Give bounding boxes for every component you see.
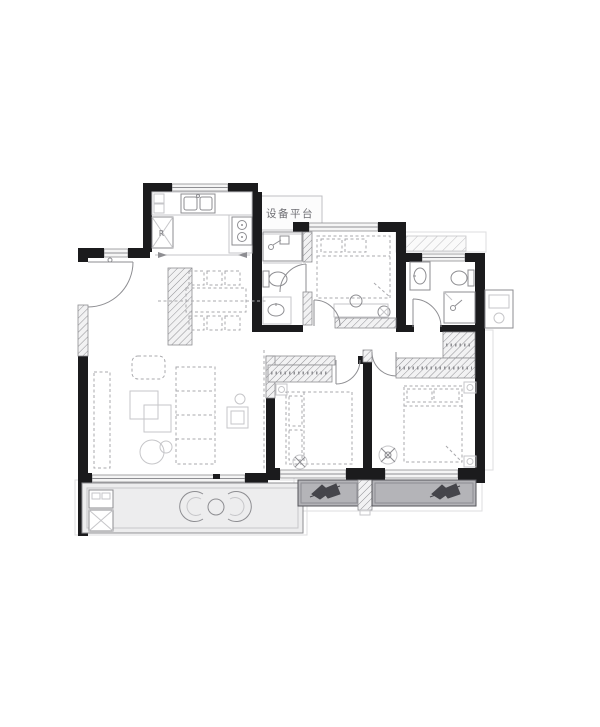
dining-chair (225, 271, 240, 285)
living-balcony-slider (92, 474, 257, 482)
dining-chair (225, 316, 240, 330)
coffee-table (130, 391, 171, 432)
bedroom-middle-wardrobe (268, 365, 332, 382)
bath-wall-upper (303, 232, 312, 262)
floor-plan-page: 设备平台 (0, 0, 600, 727)
kitchen-cabinet (154, 204, 164, 213)
balcony (82, 483, 303, 533)
bedroom-top-window (309, 223, 378, 231)
kitchen-counter-top (152, 192, 252, 215)
master-wall-stub (363, 350, 372, 362)
sofa (176, 367, 215, 464)
bedroom-top (314, 236, 390, 326)
bathroom-shared (263, 232, 306, 324)
dining-chair (207, 271, 222, 285)
equipment-platform-label: 设备平台 (266, 207, 314, 220)
bathroom-door (280, 264, 306, 292)
plant (379, 446, 397, 464)
ensuite-window (422, 254, 465, 261)
side-table (227, 394, 248, 428)
plant (293, 455, 307, 469)
door-handle (108, 258, 112, 262)
laundry-cabinet (89, 490, 113, 508)
dining-table (186, 288, 246, 312)
bedroom-middle-door (336, 360, 360, 384)
washing-machine (89, 510, 113, 531)
ac-platform (485, 290, 513, 328)
bath-wall-lower (303, 292, 312, 325)
bedroom-top-low-wall (335, 318, 396, 328)
kitchen-cabinet (154, 194, 164, 203)
armchair (132, 356, 165, 379)
stove (232, 217, 252, 245)
planter-right (372, 480, 476, 506)
refrigerator: R (152, 217, 173, 248)
nightstand (276, 384, 287, 395)
nightstand (464, 456, 476, 467)
shower (444, 292, 475, 323)
kitchen-window (172, 184, 228, 191)
floor-plan-canvas: 设备平台 (0, 0, 600, 727)
living-room (94, 350, 264, 470)
planter-divider (358, 480, 372, 515)
vanity (410, 262, 430, 290)
kitchen: R (152, 192, 252, 258)
bed (317, 236, 390, 298)
bedroom-middle-top-wall (266, 356, 335, 365)
master-door (372, 352, 396, 376)
kitchen-sink (181, 194, 215, 213)
master-window (385, 470, 458, 478)
washbasin (263, 297, 291, 324)
bedroom-middle-window (280, 470, 346, 478)
planter-left (298, 480, 360, 506)
entry-window (104, 249, 128, 257)
dining-chair (207, 316, 222, 330)
shoe-cabinet (168, 268, 192, 345)
floor-lamp (140, 440, 172, 464)
exterior-hatch-strip (406, 236, 466, 251)
entry-door (88, 258, 133, 307)
toilet (451, 270, 474, 286)
nightstand (464, 382, 476, 393)
closet (443, 332, 475, 358)
tv-cabinet (94, 372, 110, 468)
ensuite-bathroom (410, 262, 475, 327)
master-wardrobe (396, 358, 475, 378)
ensuite-door (413, 299, 441, 327)
bed (404, 386, 462, 462)
refrigerator-label: R (159, 229, 164, 238)
bed (286, 392, 352, 464)
shower (263, 232, 302, 261)
left-wall-infill (78, 305, 88, 356)
